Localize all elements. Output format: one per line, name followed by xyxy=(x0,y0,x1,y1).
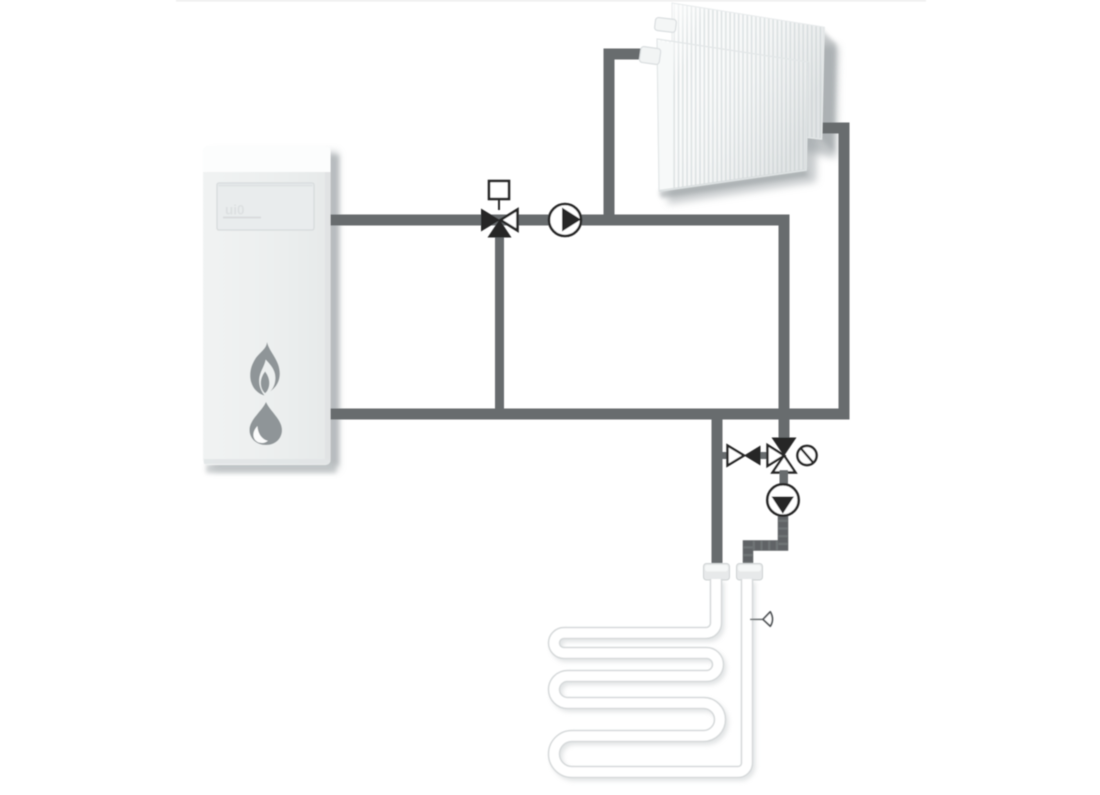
svg-text:ui0: ui0 xyxy=(225,203,245,218)
